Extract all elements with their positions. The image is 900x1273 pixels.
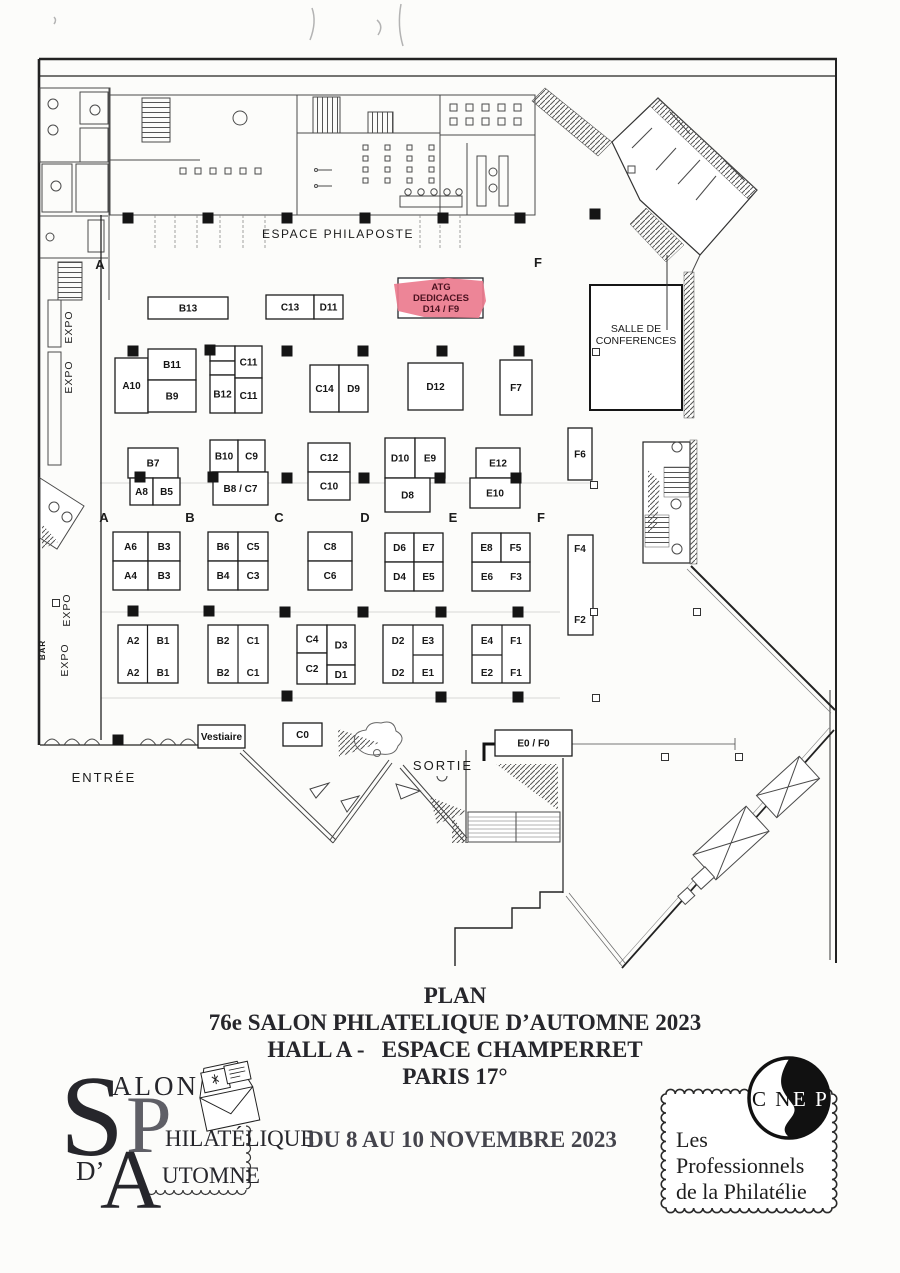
pillar — [282, 213, 293, 224]
area-label: B2 — [217, 668, 230, 679]
booth-b10: B10 — [210, 440, 238, 472]
area-label: EXPO — [61, 593, 73, 626]
booth-d11: D11 — [314, 295, 343, 319]
pillar — [128, 346, 139, 357]
seat-grid — [363, 145, 434, 183]
booth-c8: C8 — [308, 532, 352, 561]
booth-label: A4 — [124, 571, 137, 582]
cnep-line3: de la Philatélie — [676, 1179, 807, 1204]
wave-horizontal — [147, 1190, 246, 1195]
espace-philaposte-rooms — [110, 95, 535, 215]
booth-label: C14 — [315, 384, 334, 395]
booth-label: B10 — [215, 452, 234, 463]
booth-f5: F5 — [501, 533, 530, 562]
pillar — [514, 346, 525, 357]
pillar-open — [593, 695, 600, 702]
booth-label: C12 — [320, 453, 339, 464]
booth-e9: E9 — [415, 438, 445, 478]
booth-label: D11 — [320, 303, 338, 314]
area-label: BAR — [38, 640, 47, 660]
booth-d4: D4 — [385, 562, 414, 591]
booth-b6: B6 — [208, 532, 238, 561]
area-label-layer: ESPACE PHILAPOSTESALLE DECONFERENCESAFAB… — [38, 227, 676, 785]
area-label: B1 — [157, 636, 170, 647]
scanned-floor-plan-page: B13C13D11A10B11B9B12C11C11C14D9D12F7B7A8… — [0, 0, 900, 1273]
booth-label: C4 — [306, 635, 319, 646]
booth-label: C11 — [240, 358, 258, 369]
booth-c11: C11 — [235, 346, 262, 378]
salon-title: 76e SALON PHLATELIQUE D’AUTOMNE 2023 — [10, 1009, 900, 1036]
booth-a4: A4 — [113, 561, 148, 590]
pillar — [128, 606, 139, 617]
pillar — [590, 209, 601, 220]
area-label: SORTIE — [413, 758, 473, 773]
area-label: E — [449, 510, 458, 525]
booth-f6: F6 — [568, 428, 592, 480]
booth-c12: C12 — [308, 443, 350, 472]
top-right-building — [532, 88, 757, 272]
cnep-abbr-right: E P — [793, 1087, 829, 1111]
area-label: F3 — [510, 572, 522, 583]
pillar — [358, 346, 369, 357]
pillar — [513, 607, 524, 618]
pillar-open — [736, 754, 743, 761]
booth-b11: B11 — [148, 349, 196, 380]
salon-logo-utomne: UTOMNE — [162, 1163, 260, 1188]
booth-label: D6 — [393, 543, 406, 554]
booth-label: C11 — [240, 391, 258, 402]
booth-outline — [210, 361, 235, 375]
booth-label: D8 — [401, 491, 414, 502]
pillar — [435, 473, 446, 484]
booth-d3: D3 — [327, 625, 355, 665]
booth-label: E12 — [489, 459, 507, 470]
pillar — [511, 473, 522, 484]
pillar — [515, 213, 526, 224]
pillar — [437, 346, 448, 357]
pillar — [438, 213, 449, 224]
booth-f7: F7 — [500, 360, 532, 415]
area-label: E3 — [422, 636, 435, 647]
area-label: E4 — [481, 636, 494, 647]
booth-label: B6 — [217, 542, 230, 553]
pillar — [358, 607, 369, 618]
booth-label: E10 — [486, 489, 504, 500]
booth-label: B12 — [213, 390, 232, 401]
cnep-line2: Professionnels — [676, 1153, 804, 1178]
pillar — [282, 473, 293, 484]
booth-c11: C11 — [235, 378, 262, 413]
area-label: C1 — [247, 668, 260, 679]
title-block: PLAN 76e SALON PHLATELIQUE D’AUTOMNE 202… — [10, 982, 900, 1090]
city-title: PARIS 17° — [10, 1063, 900, 1090]
area-label: B1 — [157, 668, 170, 679]
area-label: D — [360, 510, 369, 525]
bottom-right-escalators — [619, 727, 834, 968]
booth-d8: D8 — [385, 478, 430, 512]
area-label: ESPACE PHILAPOSTE — [262, 227, 414, 241]
booth-label: D9 — [347, 384, 360, 395]
area-label: EXPO — [63, 310, 75, 343]
booth-d10: D10 — [385, 438, 415, 478]
booth-label: B3 — [158, 571, 171, 582]
area-label: EXPO — [59, 643, 71, 676]
area-label: F1 — [510, 636, 522, 647]
area-label: A — [95, 257, 105, 272]
scan-marks — [54, 4, 403, 46]
pillar — [123, 213, 134, 224]
area-label: E6 — [481, 572, 494, 583]
pillar — [360, 213, 371, 224]
pillar-open — [591, 482, 598, 489]
booth-label: F5 — [510, 543, 522, 554]
hall-title: HALL A - ESPACE CHAMPERRET — [10, 1036, 900, 1063]
pillar — [135, 472, 146, 483]
dedicaces-label-line: ATG — [431, 282, 450, 293]
area-label: A2 — [127, 668, 140, 679]
booth-c14: C14 — [310, 365, 339, 412]
booth-label: C3 — [247, 571, 260, 582]
booth-label: Vestiaire — [201, 732, 243, 743]
area-label: SALLE DE — [611, 323, 661, 335]
area-label: B — [185, 510, 194, 525]
area-label: E2 — [481, 668, 494, 679]
pillar-open — [53, 600, 60, 607]
booth-label: A6 — [124, 542, 137, 553]
booth-label: C6 — [324, 571, 337, 582]
booth-b9: B9 — [148, 380, 196, 412]
booth-label: D4 — [393, 572, 406, 583]
booth-label: D10 — [391, 454, 410, 465]
salle-de-conferences-room — [590, 285, 682, 410]
area-label: F — [534, 255, 542, 270]
booth-label: B5 — [160, 487, 173, 498]
area-label: CONFERENCES — [596, 335, 677, 347]
booth-label: E8 — [480, 543, 493, 554]
pillar — [113, 735, 124, 746]
booth-label: C9 — [245, 452, 258, 463]
booth-a10: A10 — [115, 358, 148, 413]
highlight-dedicaces-layer: ATGDEDICACESD14 / F9 — [394, 278, 486, 318]
area-label: B2 — [217, 636, 230, 647]
booth-b12: B12 — [210, 375, 235, 413]
booth-label: B8 / C7 — [224, 484, 258, 495]
pillar — [205, 345, 216, 356]
pillar-open — [662, 754, 669, 761]
booth-label: B4 — [217, 571, 230, 582]
pillar — [204, 606, 215, 617]
booth-c4: C4 — [297, 625, 327, 653]
booth-label: D12 — [426, 382, 445, 393]
cnep-abbr-left: C N — [752, 1087, 792, 1111]
booth-c5: C5 — [238, 532, 268, 561]
area-label: C — [274, 510, 284, 525]
booth-vestiaire: Vestiaire — [198, 725, 245, 748]
area-label: F — [537, 510, 545, 525]
area-label: EXPO — [63, 360, 75, 393]
area-label: D2 — [392, 636, 405, 647]
booth-e5: E5 — [414, 562, 443, 591]
booth-e8: E8 — [472, 533, 501, 562]
pillar-open — [591, 609, 598, 616]
pillar — [208, 472, 219, 483]
pillar — [436, 692, 447, 703]
booth-c9: C9 — [238, 440, 265, 472]
booth-b8-c7: B8 / C7 — [213, 472, 268, 505]
pillar — [280, 607, 291, 618]
booth-e0-f0: E0 / F0 — [495, 730, 572, 756]
booth-c2: C2 — [297, 653, 327, 684]
dedicaces-label-line: D14 / F9 — [423, 304, 459, 315]
area-label: A — [99, 510, 109, 525]
booth-a6: A6 — [113, 532, 148, 561]
area-label: A2 — [127, 636, 140, 647]
booth-label: E5 — [422, 572, 435, 583]
booth-label: D1 — [335, 670, 348, 681]
booth-label: A8 — [135, 487, 148, 498]
booth-c13: C13 — [266, 295, 314, 319]
pillar-open — [694, 609, 701, 616]
area-label: F1 — [510, 668, 522, 679]
booth-label: E7 — [422, 543, 435, 554]
booth-label: B9 — [166, 392, 179, 403]
booth-d9: D9 — [339, 365, 368, 412]
booth-label: B13 — [179, 304, 198, 315]
booth-b5: B5 — [153, 478, 180, 505]
pillar — [436, 607, 447, 618]
booth-label: C10 — [320, 482, 339, 493]
booth-d12: D12 — [408, 363, 463, 410]
event-dates: DU 8 AU 10 NOVEMBRE 2023 — [24, 1127, 900, 1153]
pillar — [359, 473, 370, 484]
booth-label: F6 — [574, 450, 586, 461]
booth-c6: C6 — [308, 561, 352, 590]
booth-label: E0 / F0 — [517, 739, 550, 750]
booth-label: F7 — [510, 383, 522, 394]
booth-label: E9 — [424, 454, 437, 465]
booth-layer: B13C13D11A10B11B9B12C11C11C14D9D12F7B7A8… — [113, 295, 593, 756]
booth-label: B7 — [147, 459, 160, 470]
dedicaces-label-line: DEDICACES — [413, 293, 469, 304]
booth-e7: E7 — [414, 533, 443, 562]
pillar — [282, 691, 293, 702]
booth-label: C0 — [296, 730, 309, 741]
area-label: D2 — [392, 668, 405, 679]
area-label: E1 — [422, 668, 435, 679]
plan-title: PLAN — [10, 982, 900, 1009]
booth-label: D3 — [335, 641, 348, 652]
area-label: F2 — [574, 615, 586, 626]
pillar-open — [593, 349, 600, 356]
booth-b3: B3 — [148, 561, 180, 590]
booth-b13: B13 — [148, 297, 228, 319]
booth-label: C2 — [306, 664, 319, 675]
area-label: F4 — [574, 544, 586, 555]
sortie-area — [240, 722, 735, 966]
booth-c0: C0 — [283, 723, 322, 746]
booth-b4: B4 — [208, 561, 238, 590]
booth-label: C5 — [247, 542, 260, 553]
area-label: C1 — [247, 636, 260, 647]
booth-label: B3 — [158, 542, 171, 553]
booth-d6: D6 — [385, 533, 414, 562]
booth-b3: B3 — [148, 532, 180, 561]
booth-label: A10 — [122, 381, 141, 392]
booth-label: C8 — [324, 542, 337, 553]
booth-label: B11 — [163, 360, 181, 371]
booth-d1: D1 — [327, 665, 355, 684]
pillar — [203, 213, 214, 224]
booth-c10: C10 — [308, 472, 350, 500]
area-label: ENTRÉE — [72, 770, 137, 785]
pillar — [513, 692, 524, 703]
booth-label: C13 — [281, 303, 300, 314]
pillar — [282, 346, 293, 357]
booth-c3: C3 — [238, 561, 268, 590]
